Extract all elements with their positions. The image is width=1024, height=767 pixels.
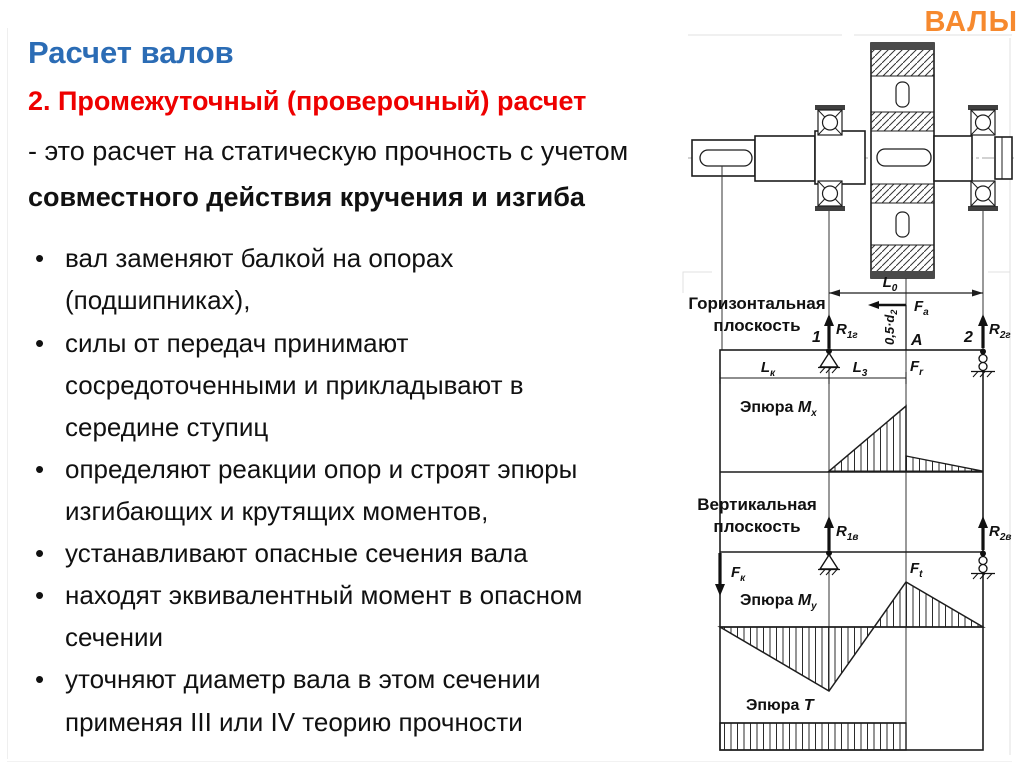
- r1v-label: R1в: [836, 523, 858, 543]
- ft-label: Ft: [910, 560, 923, 580]
- list-item: находят эквивалентный момент в опасном с…: [28, 574, 610, 658]
- epure-mx-label: Эпюра Mx: [740, 399, 817, 419]
- torque-diagram: Эпюра T: [720, 697, 906, 750]
- vertical-plane-label-1: Вертикальная: [697, 495, 817, 514]
- presentation-slide: ВАЛЫ Расчет валов 2. Промежуточный (пров…: [0, 0, 1024, 767]
- lk-label: Lк: [761, 359, 776, 379]
- horizontal-plane-section: Горизонтальная плоскость R1г 1 Fа 0,5·d2…: [688, 294, 1011, 384]
- epure-t-label: Эпюра T: [746, 697, 815, 714]
- l3-label: L3: [853, 359, 868, 379]
- text-column: Расчет валов 2. Промежуточный (проверочн…: [28, 34, 678, 743]
- horizontal-plane-label-2: плоскость: [713, 316, 800, 335]
- list-item: уточняют диаметр вала в этом сечении при…: [28, 658, 610, 742]
- my-moment-diagram: Эпюра My: [720, 582, 983, 691]
- list-item: вал заменяют балкой на опорах (подшипник…: [28, 237, 610, 321]
- vertical-plane-label-2: плоскость: [713, 517, 800, 536]
- keyway-left: [700, 150, 752, 166]
- support2-number: 2: [963, 329, 973, 346]
- vertical-plane-section: Вертикальная плоскость R1в R2в: [697, 495, 1011, 596]
- r2g-label: R2г: [989, 321, 1011, 341]
- fk-label: Fк: [731, 564, 746, 584]
- list-item: определяют реакции опор и строят эпюры и…: [28, 448, 610, 532]
- dimension-lk-l3: [720, 372, 906, 384]
- gear-cross-section: [871, 43, 934, 278]
- intro-line-1: - это расчет на статическую прочность с …: [28, 135, 678, 167]
- support-pin-v: [818, 550, 840, 575]
- half-d2-label: 0,5·d2: [882, 310, 899, 345]
- shaft-diagram: L0 Горизонтальная плоскость R1г 1 Fа 0,5…: [680, 10, 1024, 762]
- gear-web-slot-bottom: [896, 212, 909, 237]
- fa-label: Fа: [914, 298, 929, 318]
- gear-web-slot-top: [896, 82, 909, 107]
- point-a-label: A: [910, 332, 923, 349]
- horizontal-plane-label-1: Горизонтальная: [688, 294, 825, 313]
- support-pin-h: [818, 348, 840, 373]
- list-item: силы от передач принимают сосредоточенны…: [28, 322, 610, 448]
- epure-my-label: Эпюра My: [740, 592, 817, 612]
- intro-line-2: совместного действия кручения и изгиба: [28, 181, 678, 213]
- bullet-list: вал заменяют балкой на опорах (подшипник…: [28, 237, 678, 742]
- fr-label: Fr: [910, 358, 924, 378]
- support1-number: 1: [812, 329, 821, 346]
- subtitle-red: 2. Промежуточный (проверочный) расчет: [28, 85, 678, 117]
- keyway-gear: [877, 149, 931, 166]
- mx-moment-diagram: Эпюра Mx: [740, 399, 983, 471]
- r1g-label: R1г: [836, 321, 858, 341]
- list-item: устанавливают опасные сечения вала: [28, 532, 610, 574]
- shaft-assembly-drawing: [688, 43, 1014, 278]
- page-title: Расчет валов: [28, 34, 678, 71]
- slide-left-edge-line: [7, 28, 8, 759]
- r2v-label: R2в: [989, 523, 1011, 543]
